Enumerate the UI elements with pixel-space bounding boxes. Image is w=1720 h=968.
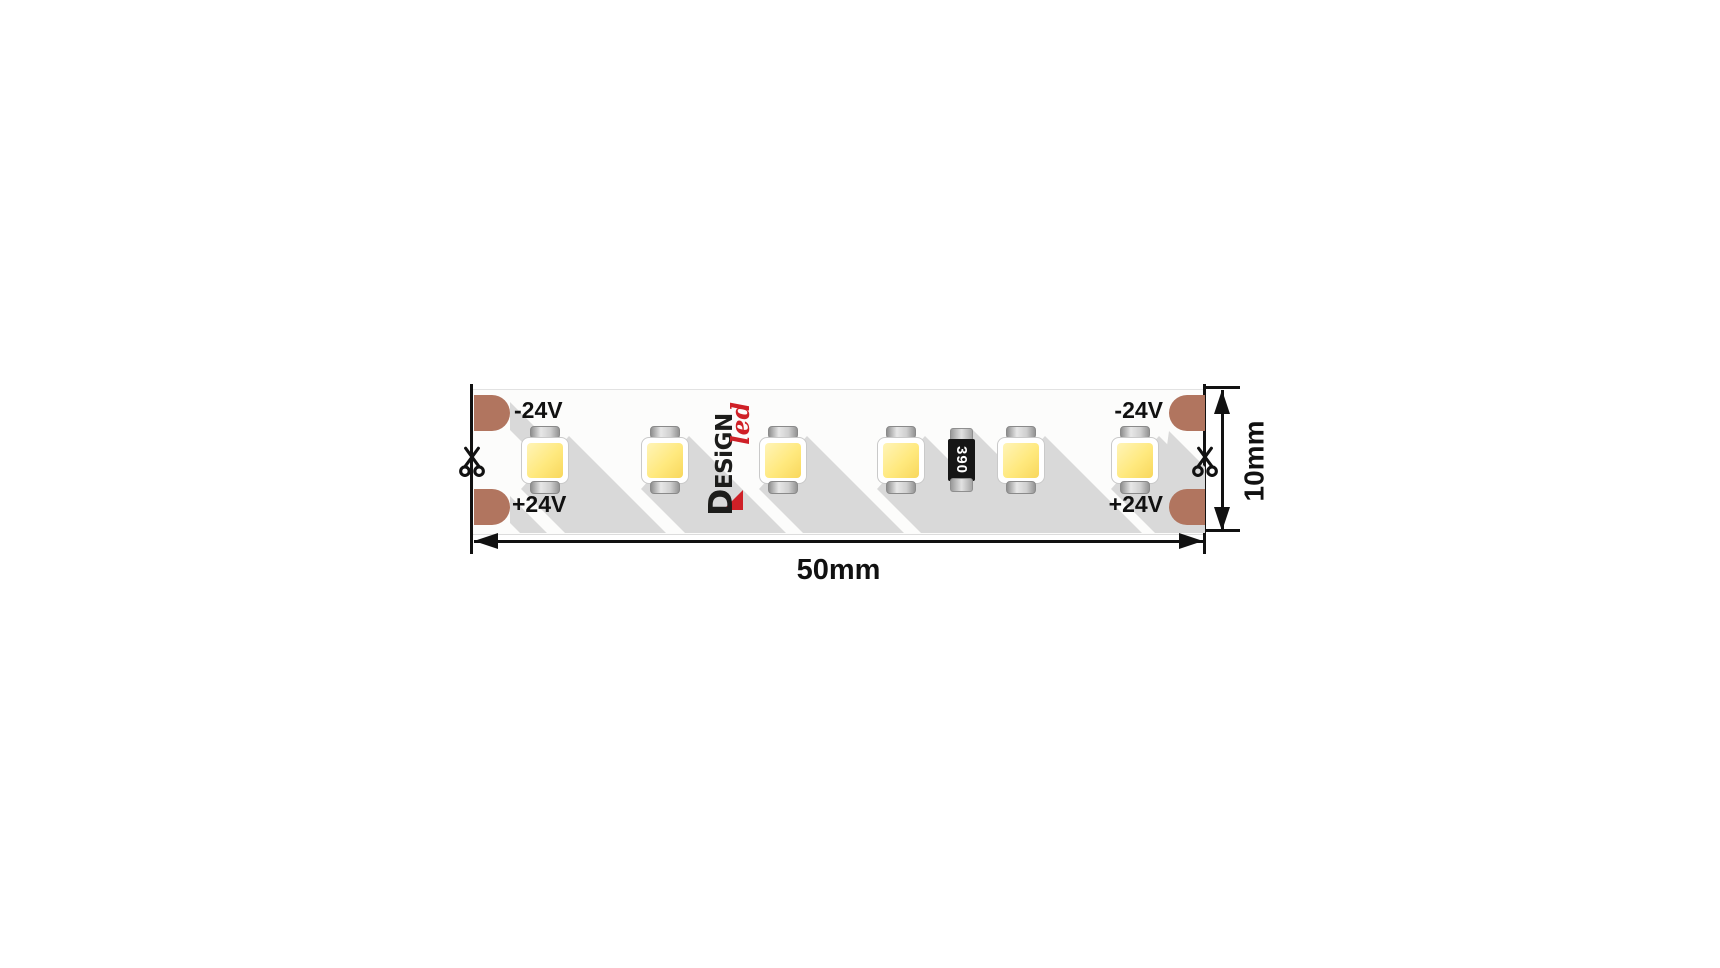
led-body xyxy=(1111,437,1159,484)
led-chip-5 xyxy=(993,425,1049,495)
led-phosphor xyxy=(527,443,563,478)
terminal-label-left-negative: -24V xyxy=(514,397,563,424)
terminal-label-right-negative: -24V xyxy=(1114,397,1163,424)
led-phosphor xyxy=(883,443,919,478)
led-body xyxy=(641,437,689,484)
led-strip: -24V +24V -24V +24V xyxy=(472,389,1205,535)
height-dimension-label: 10mm xyxy=(1234,390,1274,531)
resistor: 390 xyxy=(948,428,975,492)
arrow-down-icon xyxy=(1214,507,1230,531)
solder-pad-left-top xyxy=(474,395,510,431)
terminal-label-left-positive: +24V xyxy=(512,491,566,518)
led-phosphor xyxy=(765,443,801,478)
scissors-icon xyxy=(455,441,489,481)
brand-logo: DESiGN led xyxy=(695,404,747,516)
led-electrode xyxy=(768,481,798,494)
arrow-right-icon xyxy=(1179,533,1203,549)
arrow-left-icon xyxy=(474,533,498,549)
led-phosphor xyxy=(1117,443,1153,478)
terminal-label-right-positive: +24V xyxy=(1109,491,1163,518)
led-electrode xyxy=(650,481,680,494)
led-chip-3 xyxy=(755,425,811,495)
width-dimension-label: 50mm xyxy=(472,554,1205,587)
led-chip-6 xyxy=(1107,425,1163,495)
width-dimension-line xyxy=(474,540,1203,543)
led-chip-4 xyxy=(873,425,929,495)
height-dimension-text: 10mm xyxy=(1238,420,1270,501)
led-chip-2 xyxy=(637,425,693,495)
led-body xyxy=(997,437,1045,484)
solder-pad-right-top xyxy=(1169,395,1205,431)
led-body xyxy=(759,437,807,484)
resistor-cap xyxy=(950,478,973,492)
brand-logo-rotated: DESiGN led xyxy=(695,404,747,516)
led-phosphor xyxy=(1003,443,1039,478)
led-electrode xyxy=(886,481,916,494)
led-phosphor xyxy=(647,443,683,478)
scissors-icon xyxy=(1188,441,1222,481)
brand-logo-accent: led xyxy=(726,402,755,445)
resistor-body: 390 xyxy=(948,439,975,481)
solder-pad-right-bottom xyxy=(1169,489,1205,525)
led-chip-1 xyxy=(517,425,573,495)
led-body xyxy=(877,437,925,484)
led-body xyxy=(521,437,569,484)
led-strip-diagram: -24V +24V -24V +24V xyxy=(0,0,1720,968)
led-electrode xyxy=(1006,481,1036,494)
arrow-up-icon xyxy=(1214,390,1230,414)
resistor-value: 390 xyxy=(953,446,970,474)
extension-tick-top xyxy=(1206,386,1240,389)
solder-pad-left-bottom xyxy=(474,489,510,525)
